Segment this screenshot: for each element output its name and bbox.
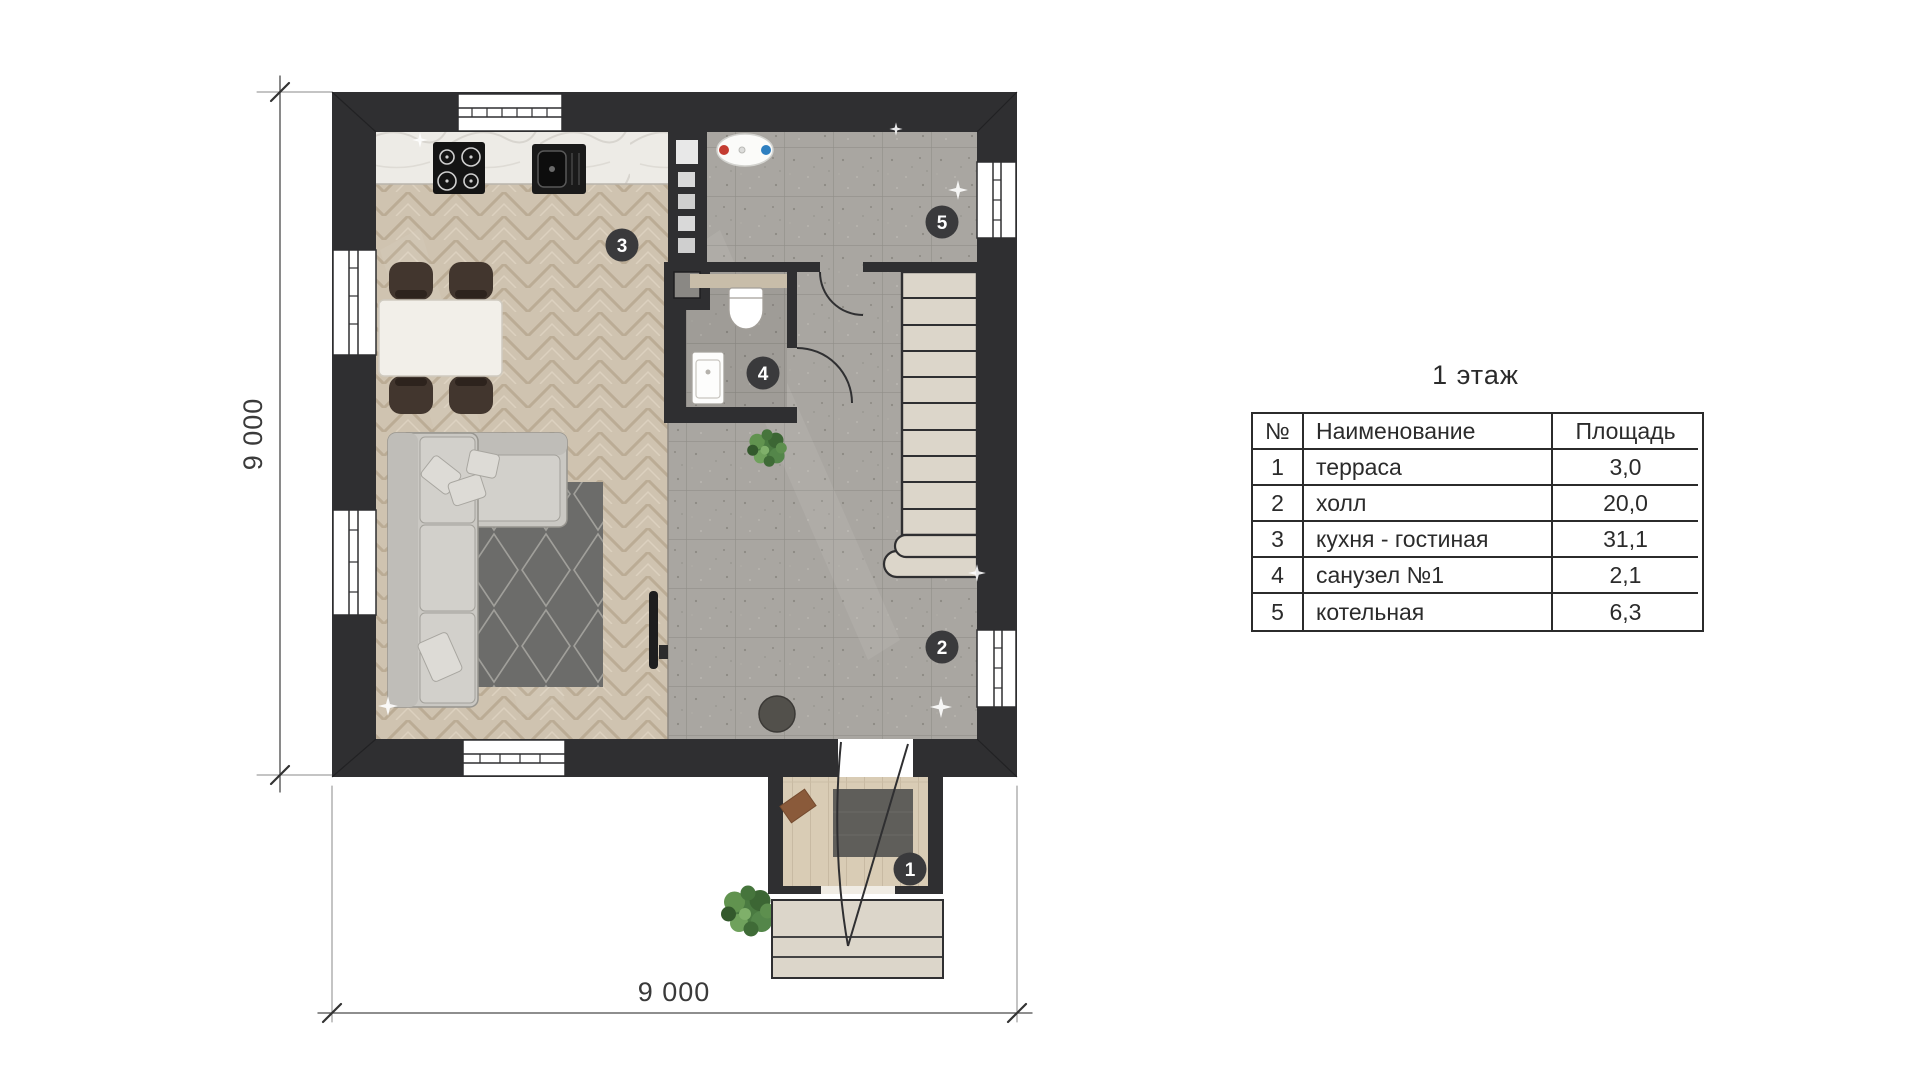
floor-plan-page: 9 000 9 000 bbox=[0, 0, 1920, 1080]
col-header-num: № bbox=[1253, 414, 1304, 450]
svg-text:3: 3 bbox=[617, 236, 628, 257]
window-bottom bbox=[463, 740, 565, 776]
area-table: № Наименование Площадь 1 терраса 3,0 2 х… bbox=[1251, 412, 1704, 632]
table-row: 4 санузел №1 2,1 bbox=[1253, 558, 1702, 594]
cell-name: санузел №1 bbox=[1304, 558, 1553, 594]
toilet-icon bbox=[729, 288, 763, 329]
cell-area: 2,1 bbox=[1553, 558, 1698, 594]
cell-num: 4 bbox=[1253, 558, 1304, 594]
window-right-upper bbox=[977, 162, 1016, 238]
kitchen-sink-icon bbox=[532, 144, 586, 194]
hall-doormat bbox=[759, 696, 795, 732]
bathroom-sink-icon bbox=[692, 352, 724, 404]
svg-text:1: 1 bbox=[905, 860, 916, 881]
col-header-area: Площадь bbox=[1553, 414, 1698, 450]
cell-area: 20,0 bbox=[1553, 486, 1698, 522]
dimension-bottom-label: 9 000 bbox=[638, 977, 711, 1007]
room-marker-2: 2 bbox=[926, 631, 959, 664]
plant-outdoor-icon bbox=[721, 886, 775, 937]
table-row: 5 котельная 6,3 bbox=[1253, 594, 1702, 630]
cell-area: 3,0 bbox=[1553, 450, 1698, 486]
col-header-name: Наименование bbox=[1304, 414, 1553, 450]
dimension-left: 9 000 bbox=[238, 76, 332, 792]
cell-area: 31,1 bbox=[1553, 522, 1698, 558]
stove-icon bbox=[433, 142, 485, 194]
table-header-row: № Наименование Площадь bbox=[1253, 414, 1702, 450]
entrance-opening bbox=[838, 739, 913, 777]
terrace-rug bbox=[833, 789, 913, 857]
window-top bbox=[458, 94, 562, 131]
svg-text:2: 2 bbox=[937, 638, 948, 659]
cell-num: 1 bbox=[1253, 450, 1304, 486]
chimney-shaft bbox=[668, 132, 707, 272]
room-marker-4: 4 bbox=[747, 357, 780, 390]
cell-name: терраса bbox=[1304, 450, 1553, 486]
cell-num: 2 bbox=[1253, 486, 1304, 522]
cell-num: 5 bbox=[1253, 594, 1304, 630]
room-marker-3: 3 bbox=[606, 229, 639, 262]
dimension-left-label: 9 000 bbox=[238, 398, 268, 471]
water-heater-icon bbox=[717, 134, 773, 166]
table-row: 1 терраса 3,0 bbox=[1253, 450, 1702, 486]
svg-text:5: 5 bbox=[937, 213, 948, 234]
window-left-upper bbox=[333, 250, 376, 355]
table-row: 2 холл 20,0 bbox=[1253, 486, 1702, 522]
window-left-lower bbox=[333, 510, 376, 615]
cell-num: 3 bbox=[1253, 522, 1304, 558]
bathroom-shelf bbox=[690, 274, 787, 288]
dining-table bbox=[379, 300, 502, 376]
cell-name: холл bbox=[1304, 486, 1553, 522]
svg-text:4: 4 bbox=[758, 364, 769, 385]
room-marker-5: 5 bbox=[926, 206, 959, 239]
cell-name: котельная bbox=[1304, 594, 1553, 630]
plan-title: 1 этаж bbox=[1251, 360, 1700, 391]
table-row: 3 кухня - гостиная 31,1 bbox=[1253, 522, 1702, 558]
room-marker-1: 1 bbox=[894, 853, 927, 886]
cell-area: 6,3 bbox=[1553, 594, 1698, 630]
cell-name: кухня - гостиная bbox=[1304, 522, 1553, 558]
window-right-lower bbox=[977, 630, 1016, 707]
